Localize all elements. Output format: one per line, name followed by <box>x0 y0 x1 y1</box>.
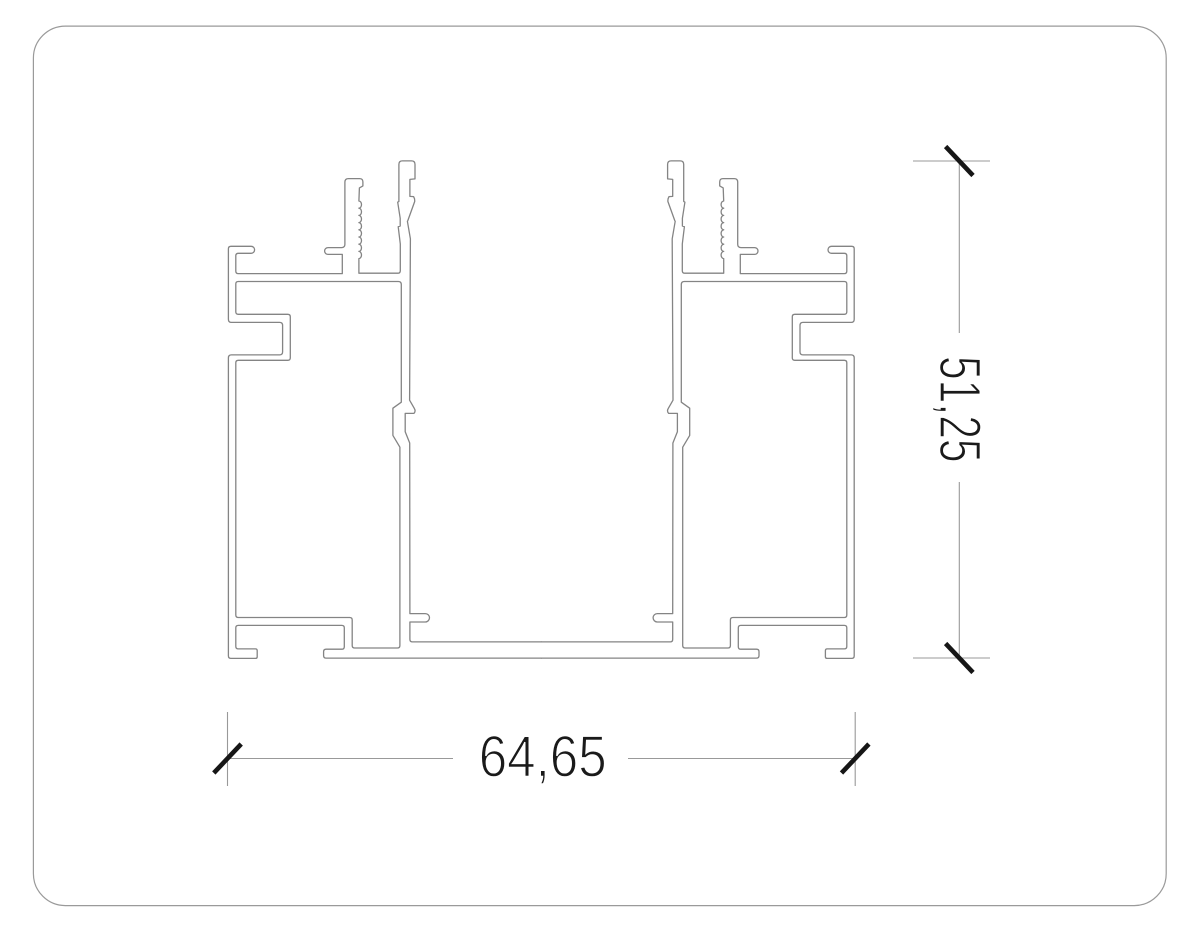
svg-text:51,25: 51,25 <box>927 356 992 463</box>
svg-text:64,65: 64,65 <box>479 725 607 790</box>
